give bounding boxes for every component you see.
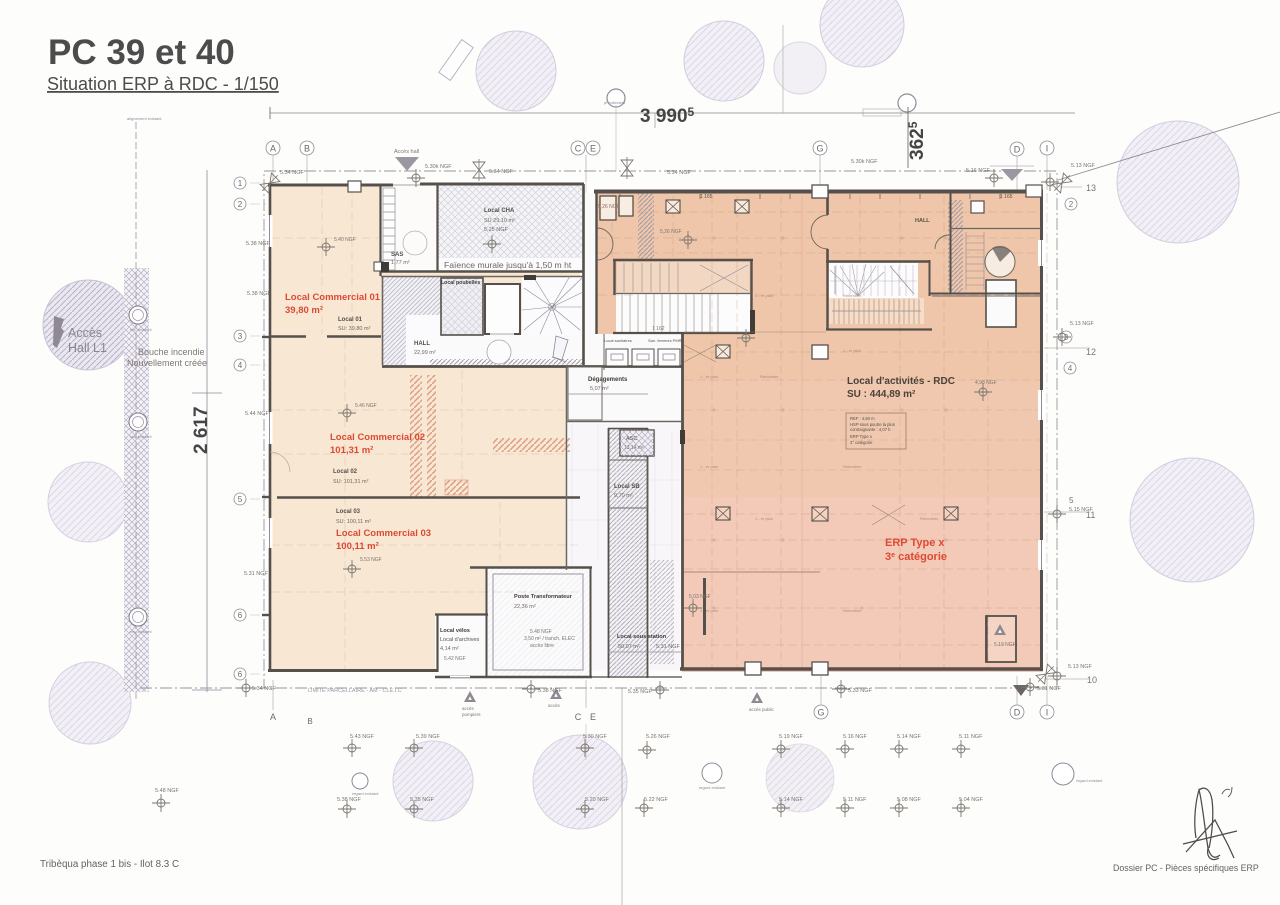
svg-text:5.31 NGF: 5.31 NGF [656,644,680,650]
svg-text:regard existant: regard existant [699,785,726,790]
svg-text:regard existant: regard existant [352,791,379,796]
svg-text:5.48 NGF: 5.48 NGF [530,629,552,635]
svg-text:5.42 NGF: 5.42 NGF [444,656,466,662]
svg-text:5.20 NGF: 5.20 NGF [585,797,609,803]
svg-text:5.38 NGF: 5.38 NGF [246,241,270,247]
svg-text:22,99 m²: 22,99 m² [414,350,436,356]
svg-text:Situation ERP à RDC - 1/150: Situation ERP à RDC - 1/150 [47,74,279,94]
svg-text:C: C [575,144,582,154]
svg-text:B: B [307,717,312,726]
svg-text:5,07 m²: 5,07 m² [590,386,609,392]
svg-text:SU 29,10 m²: SU 29,10 m² [484,218,515,224]
svg-text:Dossier PC - Pièces spécifique: Dossier PC - Pièces spécifiques ERP [1113,863,1259,873]
svg-text:E: E [590,712,596,722]
svg-text:39,80 m²: 39,80 m² [285,305,323,316]
svg-text:REF : 4,50 m: REF : 4,50 m [850,416,875,421]
svg-text:5.48 NGF: 5.48 NGF [155,788,179,794]
svg-text:rés. existant: rés. existant [130,327,152,332]
svg-text:SAS: SAS [391,252,403,258]
svg-text:5.40 NGF: 5.40 NGF [334,237,356,243]
svg-text:9,70 m²: 9,70 m² [614,493,633,499]
svg-text:D: D [1014,708,1021,718]
svg-text:3° catégorie: 3° catégorie [850,440,873,445]
svg-text:12: 12 [1086,347,1096,357]
svg-text:SU: 100,11 m²: SU: 100,11 m² [336,519,371,525]
svg-text:10: 10 [1087,675,1097,685]
svg-text:Local vélos: Local vélos [440,628,470,634]
svg-text:5.39 NGF: 5.39 NGF [416,734,440,740]
svg-text:5.14 NGF: 5.14 NGF [779,797,803,803]
svg-text:Poste Transformateur: Poste Transformateur [514,594,573,600]
svg-text:Local 01: Local 01 [338,317,363,323]
svg-text:1,77 m²: 1,77 m² [391,260,410,266]
svg-text:5.16 NGF: 5.16 NGF [843,734,867,740]
svg-text:5.14 NGF: 5.14 NGF [897,734,921,740]
svg-text:Tribèqua phase 1 bis - Ilot 8.: Tribèqua phase 1 bis - Ilot 8.3 C [40,859,179,870]
svg-text:1 165: 1 165 [1000,194,1013,200]
svg-text:3e catégorie: 3e catégorie [885,551,947,563]
svg-text:5,26 NGF: 5,26 NGF [598,204,620,210]
svg-text:6: 6 [238,611,243,620]
svg-text:Accès hall: Accès hall [394,149,419,155]
svg-text:alignement existant: alignement existant [127,116,162,121]
svg-text:5: 5 [1069,496,1074,505]
svg-text:100,11 m²: 100,11 m² [336,541,379,552]
svg-text:Nouvellement créée: Nouvellement créée [127,358,207,368]
svg-text:C: C [575,712,582,722]
svg-text:rés. existant: rés. existant [130,434,152,439]
svg-text:rés. existant: rés. existant [130,629,152,634]
svg-text:5.13 NGF: 5.13 NGF [1070,321,1094,327]
svg-text:1 162: 1 162 [652,326,665,332]
svg-text:5.38 NGF: 5.38 NGF [337,797,361,803]
svg-text:accès libre: accès libre [530,643,554,649]
svg-text:5.31 NGF: 5.31 NGF [1037,686,1061,692]
svg-text:E: E [590,144,596,154]
svg-text:5.16 NGF: 5.16 NGF [966,168,990,174]
svg-text:SU : 444,89 m²: SU : 444,89 m² [847,389,916,400]
svg-text:5.38 NGF: 5.38 NGF [538,688,562,694]
svg-text:6: 6 [238,670,243,679]
svg-text:A: A [270,712,276,722]
svg-text:accès: accès [548,703,561,708]
svg-text:5.30 NGF: 5.30 NGF [583,734,607,740]
svg-text:Local 02: Local 02 [333,469,358,475]
svg-text:5.30k NGF: 5.30k NGF [425,164,452,170]
svg-text:3: 3 [238,332,243,341]
svg-text:5.11 NGF: 5.11 NGF [843,797,867,803]
svg-text:Local SB: Local SB [614,484,640,490]
svg-text:5.26 NGF: 5.26 NGF [646,734,670,740]
svg-text:2 617: 2 617 [191,406,212,454]
svg-text:5.08 NGF: 5.08 NGF [897,797,921,803]
svg-text:Local 03: Local 03 [336,509,361,515]
svg-text:5.19 NGF: 5.19 NGF [994,642,1016,648]
svg-text:Dégagements: Dégagements [588,377,628,383]
svg-text:1 165: 1 165 [700,194,713,200]
svg-text:4: 4 [238,361,243,370]
svg-text:5.35 NGF: 5.35 NGF [628,689,652,695]
svg-text:Retombée: Retombée [843,464,862,469]
svg-text:Local Commercial 03: Local Commercial 03 [336,528,431,539]
svg-text:50,07 m²: 50,07 m² [618,644,640,650]
svg-text:5.34 NGF: 5.34 NGF [667,170,691,176]
svg-text:Local CHA: Local CHA [484,208,515,214]
svg-text:San. femmes PMR: San. femmes PMR [648,338,682,343]
svg-text:5.44 NGF: 5.44 NGF [245,411,269,417]
svg-text:4,98 NGF: 4,98 NGF [975,380,997,386]
svg-text:5.33 NGF: 5.33 NGF [848,688,872,694]
svg-text:22,36 m²: 22,36 m² [514,604,536,610]
svg-text:5,25 NGF: 5,25 NGF [484,227,508,233]
svg-text:pt collecteur: pt collecteur [604,100,626,105]
svg-text:G: G [817,708,824,718]
svg-text:Accès: Accès [68,326,102,340]
svg-text:1 - er plan: 1 - er plan [700,464,718,469]
svg-text:Local d'activités - RDC: Local d'activités - RDC [847,376,955,387]
svg-text:contraignante : 4,07 h: contraignante : 4,07 h [850,427,891,432]
svg-text:pompiers: pompiers [462,712,481,717]
svg-text:D: D [1014,145,1021,155]
svg-text:4,14 m²: 4,14 m² [440,646,459,652]
svg-text:ERP Type x: ERP Type x [850,434,873,439]
svg-text:5.34 NGF: 5.34 NGF [280,170,304,176]
svg-text:Retombée: Retombée [920,516,939,521]
svg-text:5.11 NGF: 5.11 NGF [959,734,983,740]
svg-text:1 - er plan: 1 - er plan [700,608,718,613]
svg-text:1 - er plan: 1 - er plan [755,293,773,298]
svg-text:5.04 NGF: 5.04 NGF [959,797,983,803]
svg-text:regard existant: regard existant [1076,778,1103,783]
svg-text:Bouche incendie: Bouche incendie [138,347,205,357]
svg-text:5: 5 [238,495,243,504]
svg-text:1: 1 [238,179,243,188]
svg-text:1 - er plan: 1 - er plan [843,348,861,353]
svg-text:Faïence murale jusqu'à 1,50 m: Faïence murale jusqu'à 1,50 m ht [444,260,572,270]
svg-text:LIMITE PARCELLAIRE - AM - CLE.: LIMITE PARCELLAIRE - AM - CLE.I.C [308,688,402,694]
svg-text:3 9905: 3 9905 [640,105,695,127]
svg-text:G: G [816,144,823,154]
svg-text:2: 2 [1069,200,1074,209]
svg-text:Hall L1: Hall L1 [68,341,107,355]
svg-text:I: I [1046,708,1049,718]
svg-text:Local Commercial 01: Local Commercial 01 [285,292,381,303]
svg-text:5.38 NGF: 5.38 NGF [247,291,271,297]
svg-text:B: B [304,144,310,154]
svg-text:1 - er plan: 1 - er plan [700,374,718,379]
svg-text:Local Commercial 02: Local Commercial 02 [330,432,425,443]
svg-text:HALL: HALL [414,341,430,347]
svg-text:5.34 NGF: 5.34 NGF [489,169,513,175]
svg-text:5.30k NGF: 5.30k NGF [851,159,878,165]
svg-text:Local sanitaires: Local sanitaires [604,338,632,343]
svg-text:5.22 NGF: 5.22 NGF [644,797,668,803]
svg-text:4: 4 [1068,364,1073,373]
svg-text:101,31 m²: 101,31 m² [330,445,373,456]
svg-text:11: 11 [1086,510,1095,520]
svg-text:2: 2 [238,200,243,209]
svg-text:Retombée: Retombée [760,374,779,379]
svg-text:Local sous station: Local sous station [617,634,667,640]
svg-text:Retombée: Retombée [843,608,862,613]
svg-text:Local poubelles: Local poubelles [441,280,480,286]
svg-text:I: I [1046,144,1049,154]
svg-text:5.34 NGF: 5.34 NGF [252,686,276,692]
svg-text:13,14 m²: 13,14 m² [624,445,644,451]
svg-text:5.43 NGF: 5.43 NGF [350,734,374,740]
svg-text:5.46 NGF: 5.46 NGF [355,403,377,409]
svg-text:5,03 NGF: 5,03 NGF [689,594,711,600]
svg-text:accès public: accès public [749,707,775,712]
svg-text:5.31 NGF: 5.31 NGF [244,571,268,577]
svg-text:ASC: ASC [626,436,637,442]
svg-text:accès: accès [462,706,475,711]
svg-text:5.53 NGF: 5.53 NGF [360,557,382,563]
svg-text:ERP Type x: ERP Type x [885,537,945,549]
svg-text:PC 39 et 40: PC 39 et 40 [48,33,235,72]
svg-text:SU: 101,31 m²: SU: 101,31 m² [333,479,369,485]
svg-text:1 - er plan: 1 - er plan [755,516,773,521]
svg-text:13: 13 [1086,183,1096,193]
svg-text:3,50 m² / tranch. ELEC: 3,50 m² / tranch. ELEC [524,636,575,642]
svg-text:5.13 NGF: 5.13 NGF [1068,664,1092,670]
svg-text:SU: 39,80 m²: SU: 39,80 m² [338,326,371,332]
svg-text:5.19 NGF: 5.19 NGF [779,734,803,740]
svg-text:5.13 NGF: 5.13 NGF [1071,163,1095,169]
svg-text:A: A [270,144,276,154]
svg-text:HALL: HALL [915,218,930,224]
svg-text:5,26 NGF: 5,26 NGF [660,229,682,235]
svg-text:Local d'archives: Local d'archives [440,637,480,643]
